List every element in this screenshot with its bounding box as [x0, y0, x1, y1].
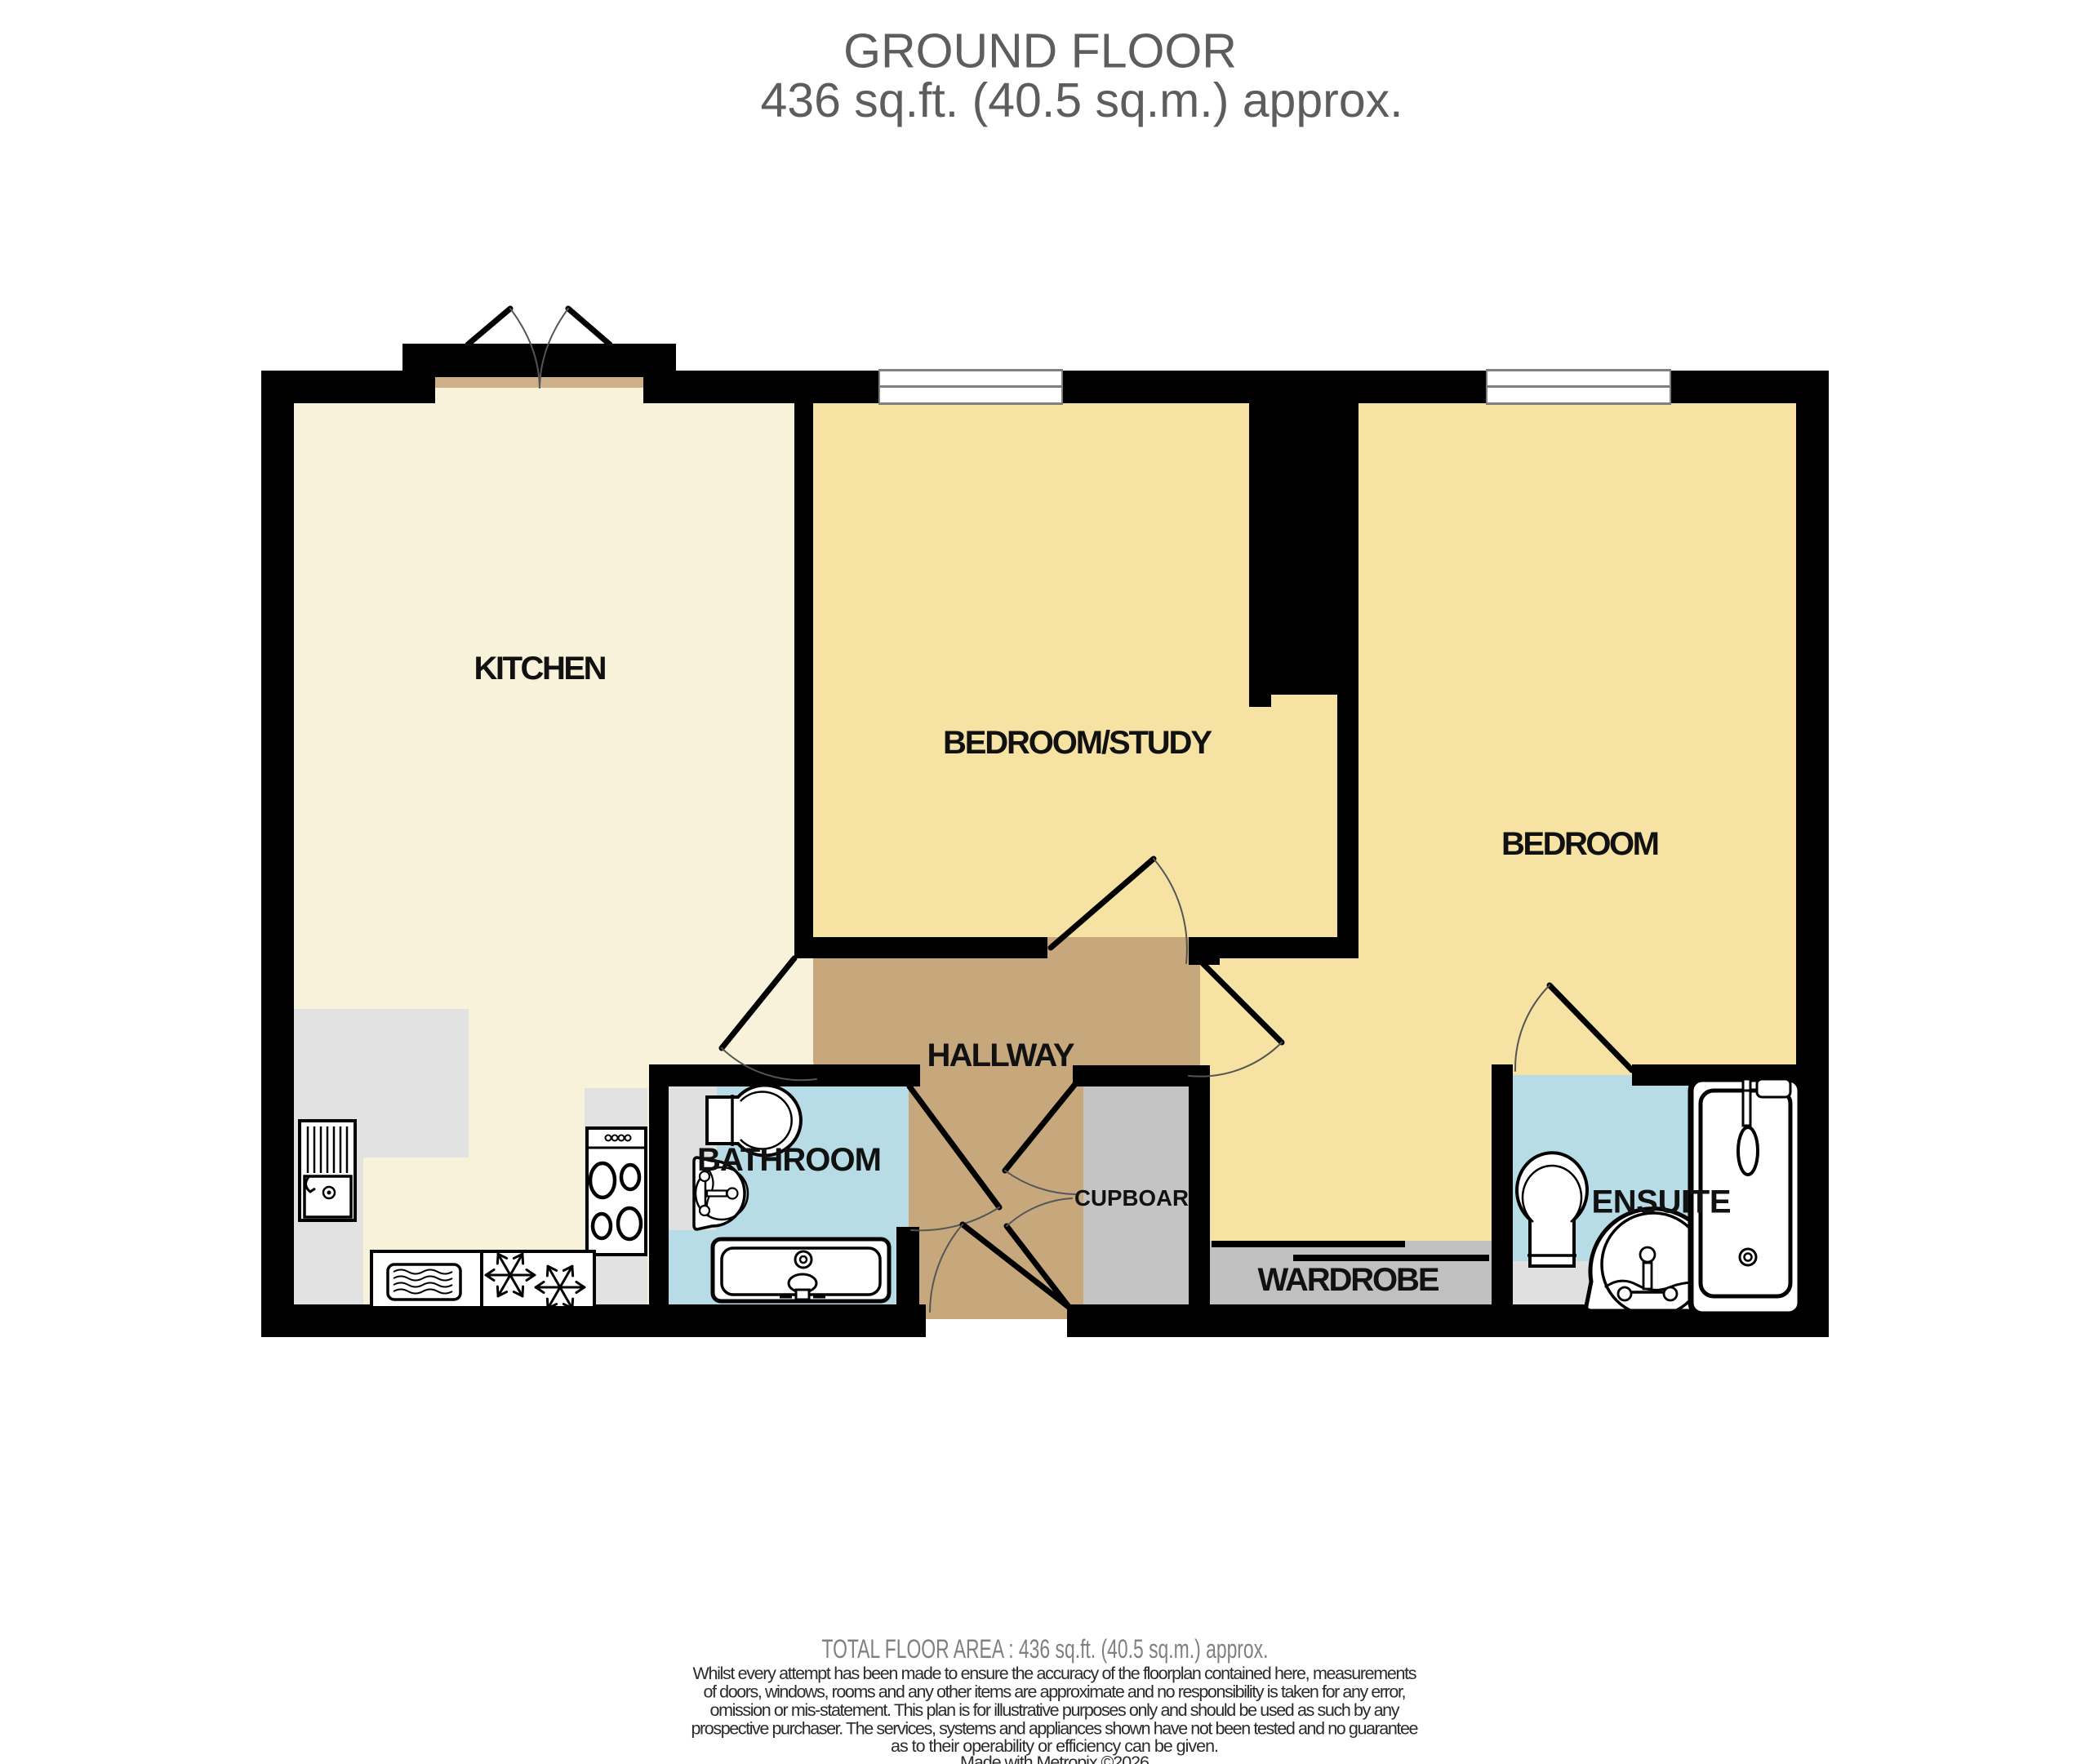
svg-text:WARDROBE: WARDROBE [1258, 1262, 1440, 1298]
svg-text:of doors, windows, rooms and a: of doors, windows, rooms and any other i… [704, 1682, 1407, 1702]
svg-text:BEDROOM: BEDROOM [1501, 826, 1660, 862]
svg-text:TOTAL FLOOR AREA : 436 sq.ft.: TOTAL FLOOR AREA : 436 sq.ft. (40.5 sq.m… [822, 1634, 1269, 1664]
svg-text:GROUND FLOOR: GROUND FLOOR [843, 24, 1237, 78]
svg-text:CUPBOARD: CUPBOARD [1074, 1185, 1205, 1211]
svg-text:BEDROOM/STUDY: BEDROOM/STUDY [943, 725, 1212, 761]
svg-text:HALLWAY: HALLWAY [927, 1038, 1075, 1073]
svg-text:ENSUITE: ENSUITE [1592, 1184, 1732, 1220]
svg-text:BATHROOM: BATHROOM [697, 1142, 882, 1178]
svg-text:Whilst every attempt has been: Whilst every attempt has been made to en… [693, 1664, 1417, 1683]
svg-text:omission or mis-statement. Thi: omission or mis-statement. This plan is … [710, 1700, 1400, 1720]
svg-text:436 sq.ft. (40.5 sq.m.) approx: 436 sq.ft. (40.5 sq.m.) approx. [760, 73, 1403, 127]
svg-text:Made with Metropix ©2026: Made with Metropix ©2026 [960, 1753, 1149, 1764]
svg-text:KITCHEN: KITCHEN [474, 651, 607, 686]
svg-text:prospective purchaser. The ser: prospective purchaser. The services, sys… [691, 1719, 1419, 1739]
